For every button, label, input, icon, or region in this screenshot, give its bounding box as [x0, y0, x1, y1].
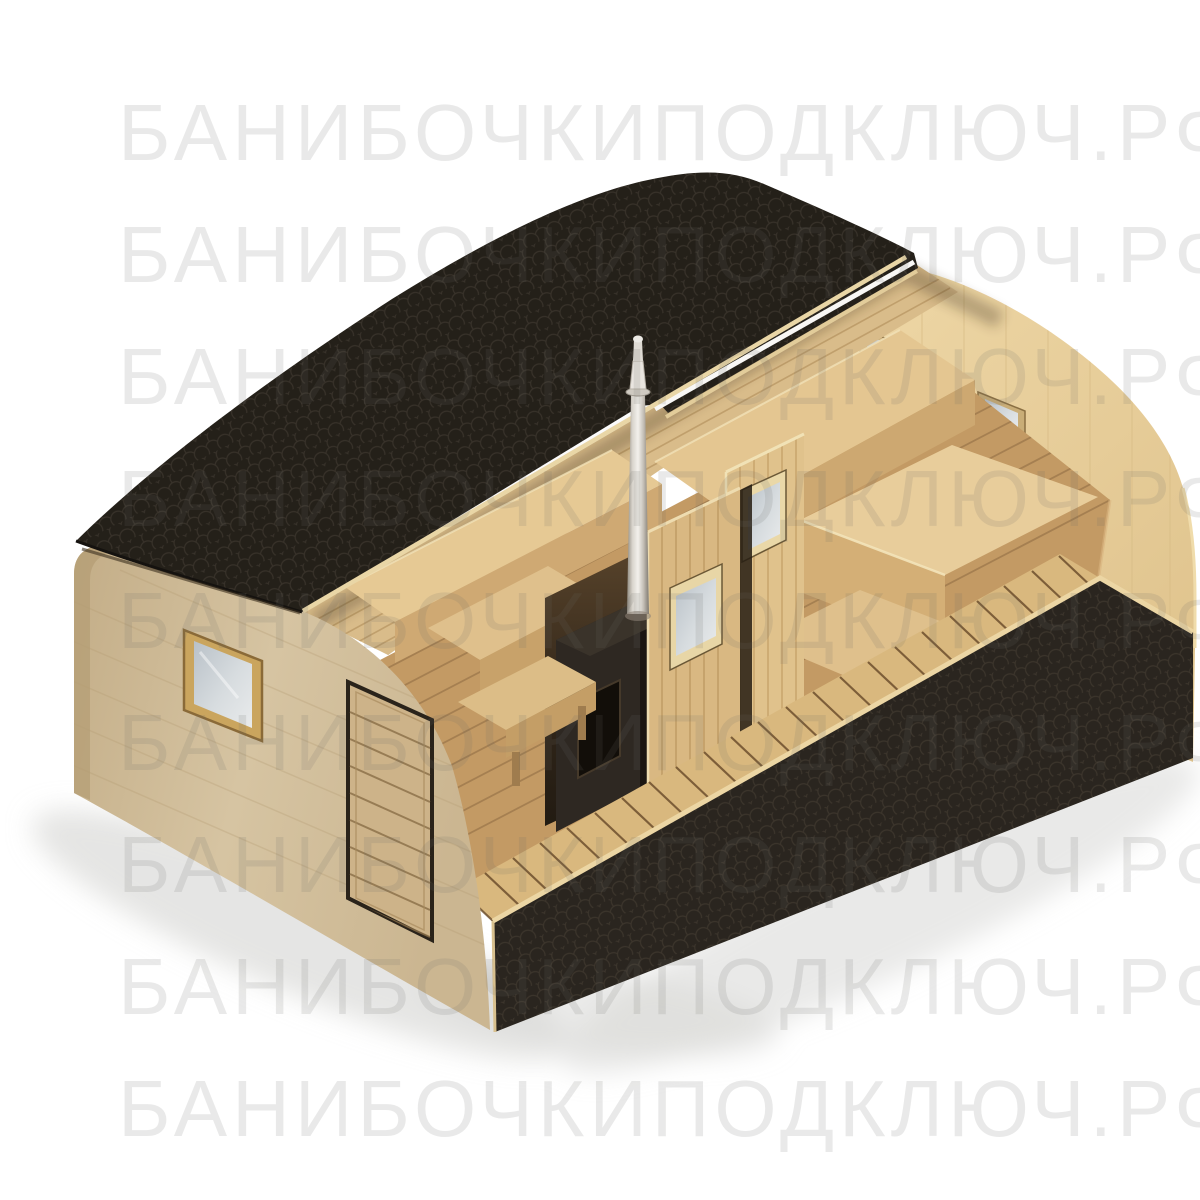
watermark-row: БАНИБОЧКИПОДКЛЮЧ.РФ: [118, 576, 1200, 665]
watermark-row: БАНИБОЧКИПОДКЛЮЧ.РФ: [118, 454, 1200, 543]
watermark-row: БАНИБОЧКИПОДКЛЮЧ.РФ: [118, 698, 1200, 787]
watermark-row: БАНИБОЧКИПОДКЛЮЧ.РФ: [118, 820, 1200, 909]
sauna-cutaway-render: БАНИБОЧКИПОДКЛЮЧ.РФ БАНИБОЧКИПОДКЛЮЧ.РФ …: [0, 0, 1200, 1200]
watermark-row: БАНИБОЧКИПОДКЛЮЧ.РФ: [118, 88, 1200, 177]
watermark-row: БАНИБОЧКИПОДКЛЮЧ.РФ: [118, 210, 1200, 299]
watermark-row: БАНИБОЧКИПОДКЛЮЧ.РФ: [118, 942, 1200, 1031]
watermark-row: БАНИБОЧКИПОДКЛЮЧ.РФ: [118, 1064, 1200, 1153]
watermark-row: БАНИБОЧКИПОДКЛЮЧ.РФ: [118, 332, 1200, 421]
watermark-layer: БАНИБОЧКИПОДКЛЮЧ.РФ БАНИБОЧКИПОДКЛЮЧ.РФ …: [118, 88, 1200, 1153]
screenshot-root: БАНИБОЧКИПОДКЛЮЧ.РФ БАНИБОЧКИПОДКЛЮЧ.РФ …: [0, 0, 1200, 1200]
